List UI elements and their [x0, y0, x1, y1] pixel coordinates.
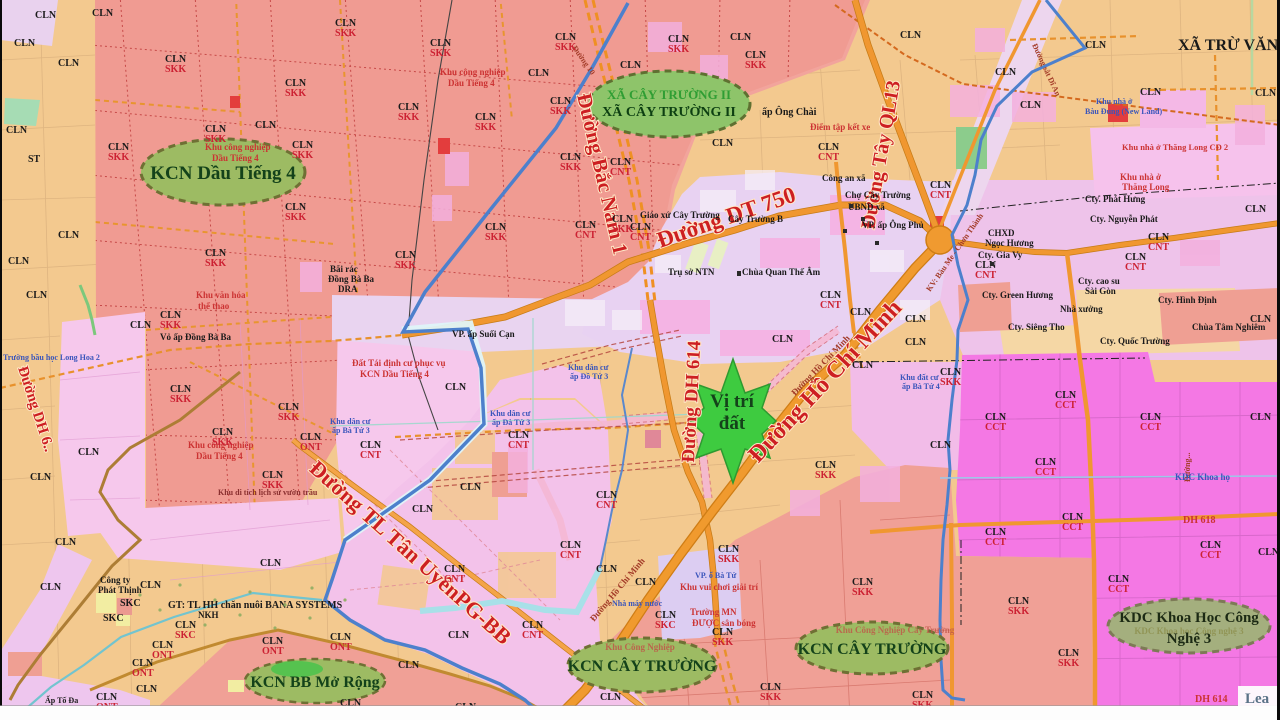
svg-text:Khu Công Nghiệp: Khu Công Nghiệp: [605, 642, 675, 652]
svg-text:KCN CÂY TRƯỜNG: KCN CÂY TRƯỜNG: [798, 639, 947, 658]
svg-text:CLN: CLN: [8, 256, 30, 267]
svg-text:CNT: CNT: [610, 167, 631, 178]
svg-text:CLN: CLN: [600, 692, 622, 703]
svg-text:Cty. Quốc Trường: Cty. Quốc Trường: [1100, 336, 1170, 346]
svg-text:XÃ CÂY TRƯỜNG II: XÃ CÂY TRƯỜNG II: [607, 87, 731, 102]
svg-text:CLN: CLN: [1140, 87, 1162, 98]
svg-text:Khu nhà ở Thăng Long CĐ 2: Khu nhà ở Thăng Long CĐ 2: [1122, 142, 1228, 152]
svg-text:CLN: CLN: [460, 482, 482, 493]
svg-text:Khu công nghiệp: Khu công nghiệp: [440, 67, 506, 77]
svg-text:ONT: ONT: [132, 668, 154, 679]
svg-text:CNT: CNT: [522, 630, 543, 641]
svg-text:CLN: CLN: [40, 582, 62, 593]
svg-text:SKK: SKK: [940, 377, 961, 388]
svg-text:CLN: CLN: [596, 564, 618, 575]
svg-text:Khu nhà ở: Khu nhà ở: [1120, 172, 1161, 182]
svg-text:SKK: SKK: [395, 260, 416, 271]
svg-text:SKK: SKK: [745, 60, 766, 71]
svg-text:Lea: Lea: [1245, 691, 1270, 707]
svg-text:CLN: CLN: [528, 68, 550, 79]
svg-text:SKK: SKK: [485, 232, 506, 243]
svg-text:CLN: CLN: [260, 558, 282, 569]
svg-text:SKC: SKC: [120, 598, 141, 609]
svg-text:Dầu Tiếng 4: Dầu Tiếng 4: [448, 78, 495, 88]
svg-text:CLN: CLN: [92, 8, 114, 19]
svg-text:Thăng Long: Thăng Long: [1122, 182, 1170, 192]
svg-text:CNT: CNT: [630, 232, 651, 243]
svg-text:DH 618: DH 618: [1183, 515, 1216, 526]
svg-text:CCT: CCT: [1140, 422, 1161, 433]
svg-text:Khu đất cư: Khu đất cư: [900, 373, 939, 382]
svg-text:Bàu Đung (New Land): Bàu Đung (New Land): [1085, 107, 1162, 116]
svg-text:DRA: DRA: [338, 284, 358, 294]
svg-text:XÃ TRỪ VĂN T: XÃ TRỪ VĂN T: [1178, 35, 1280, 54]
svg-text:CLN: CLN: [852, 360, 874, 371]
svg-text:SKK: SKK: [278, 412, 299, 423]
svg-text:CLN: CLN: [905, 337, 927, 348]
svg-text:Khu dân cư: Khu dân cư: [330, 417, 371, 426]
svg-text:Điểm tập kết xe: Điểm tập kết xe: [810, 122, 870, 132]
svg-text:ONT: ONT: [262, 646, 284, 657]
svg-text:CLN: CLN: [58, 230, 80, 241]
svg-text:Khu vui chơi giải trí: Khu vui chơi giải trí: [680, 582, 758, 592]
svg-text:CLN: CLN: [6, 125, 28, 136]
svg-text:ấp Đồ Tứ 3: ấp Đồ Tứ 3: [570, 372, 608, 381]
svg-text:KCN CÂY TRƯỜNG: KCN CÂY TRƯỜNG: [568, 656, 717, 675]
svg-text:KCN BB Mở Rộng: KCN BB Mở Rộng: [250, 674, 379, 691]
svg-text:CLN: CLN: [55, 537, 77, 548]
svg-text:Công ty: Công ty: [100, 575, 131, 585]
svg-text:Cty. cao su: Cty. cao su: [1078, 276, 1120, 286]
svg-text:CNT: CNT: [596, 500, 617, 511]
svg-text:ấp Đà Tứ 3: ấp Đà Tứ 3: [492, 418, 530, 427]
svg-text:CLN: CLN: [905, 314, 927, 325]
svg-text:SKK: SKK: [212, 437, 233, 448]
svg-text:Nhà máy nước: Nhà máy nước: [612, 599, 663, 608]
svg-text:Công an xã: Công an xã: [822, 173, 866, 183]
svg-text:SKK: SKK: [205, 134, 226, 145]
svg-text:ONT: ONT: [152, 650, 174, 661]
svg-text:CLN: CLN: [136, 684, 158, 695]
svg-text:Trụ sở NTN: Trụ sở NTN: [668, 267, 715, 277]
svg-text:ST: ST: [28, 154, 41, 165]
svg-text:SKK: SKK: [712, 637, 733, 648]
svg-text:Ấp Tố Đa: Ấp Tố Đa: [45, 695, 78, 705]
svg-text:KDC Khoa họ: KDC Khoa họ: [1175, 472, 1231, 482]
svg-text:VP. ấp Suối Cạn: VP. ấp Suối Cạn: [452, 329, 515, 339]
svg-text:CLN: CLN: [1020, 100, 1042, 111]
svg-text:XÃ CÂY TRƯỜNG II: XÃ CÂY TRƯỜNG II: [602, 102, 736, 120]
svg-text:SKK: SKK: [815, 470, 836, 481]
svg-text:Khu dân cư: Khu dân cư: [490, 409, 531, 418]
svg-text:Cty. Phát Hưng: Cty. Phát Hưng: [1085, 194, 1146, 204]
svg-text:CLN: CLN: [255, 120, 277, 131]
svg-text:CNT: CNT: [818, 152, 839, 163]
svg-text:SKC: SKC: [655, 620, 676, 631]
svg-text:SKK: SKK: [335, 28, 356, 39]
svg-text:SKK: SKK: [262, 480, 283, 491]
svg-text:SKK: SKK: [668, 44, 689, 55]
svg-text:UBND xã: UBND xã: [848, 202, 885, 212]
svg-text:SKK: SKK: [165, 64, 186, 75]
svg-text:Cty. Nguyễn Phát: Cty. Nguyễn Phát: [1090, 214, 1158, 224]
svg-text:SKC: SKC: [103, 613, 124, 624]
svg-text:CLN: CLN: [635, 577, 657, 588]
svg-text:Cây Trường B: Cây Trường B: [728, 214, 783, 224]
svg-text:SKK: SKK: [718, 554, 739, 565]
svg-text:Cty. Hình Định: Cty. Hình Định: [1158, 295, 1217, 305]
svg-text:Khu nhà ở: Khu nhà ở: [1096, 97, 1133, 106]
svg-text:CNT: CNT: [444, 574, 465, 585]
svg-text:CNT: CNT: [930, 190, 951, 201]
svg-text:CLN: CLN: [1258, 547, 1280, 558]
svg-text:Dầu Tiếng 4: Dầu Tiếng 4: [196, 451, 243, 461]
svg-text:SKK: SKK: [550, 106, 571, 117]
svg-text:CLN: CLN: [78, 447, 100, 458]
svg-text:CCT: CCT: [1062, 522, 1083, 533]
svg-text:CLN: CLN: [730, 32, 752, 43]
svg-text:Trường bầu học Long Hoa 2: Trường bầu học Long Hoa 2: [3, 353, 100, 362]
svg-text:CHXD: CHXD: [988, 228, 1015, 238]
svg-text:CLN: CLN: [35, 10, 57, 21]
svg-text:CCT: CCT: [1108, 584, 1129, 595]
svg-text:ấp Bà Tứ 3: ấp Bà Tứ 3: [332, 426, 370, 435]
svg-text:CNT: CNT: [360, 450, 381, 461]
svg-text:ONT: ONT: [300, 442, 322, 453]
svg-text:CLN: CLN: [995, 67, 1017, 78]
svg-text:Bãi rác: Bãi rác: [330, 264, 358, 274]
svg-text:Đồng Bà Ba: Đồng Bà Ba: [328, 274, 375, 284]
svg-text:CLN: CLN: [140, 580, 162, 591]
svg-text:Vỏ ấp Đồng Bà Ba: Vỏ ấp Đồng Bà Ba: [160, 332, 232, 342]
svg-text:Giáo xứ Cây Trường: Giáo xứ Cây Trường: [640, 210, 720, 220]
svg-text:CLN: CLN: [1250, 412, 1272, 423]
svg-text:CCT: CCT: [1055, 400, 1076, 411]
svg-text:Cty. Green Hương: Cty. Green Hương: [982, 290, 1053, 300]
svg-text:CCT: CCT: [985, 422, 1006, 433]
svg-text:CLN: CLN: [58, 58, 80, 69]
svg-text:Ngọc Hương: Ngọc Hương: [985, 238, 1034, 248]
svg-text:CLN: CLN: [850, 307, 872, 318]
svg-text:CLN: CLN: [712, 138, 734, 149]
svg-text:ấp Ông Chài: ấp Ông Chài: [762, 105, 817, 118]
svg-text:CLN: CLN: [130, 320, 152, 331]
svg-text:CCT: CCT: [985, 537, 1006, 548]
svg-text:Khu văn hóa: Khu văn hóa: [196, 290, 246, 300]
svg-text:CLN: CLN: [398, 660, 420, 671]
svg-text:CLN: CLN: [1255, 88, 1277, 99]
svg-text:Chùa Quan Thế Âm: Chùa Quan Thế Âm: [742, 267, 821, 277]
svg-text:NKH: NKH: [198, 610, 219, 620]
svg-text:SKK: SKK: [1058, 658, 1079, 669]
svg-text:SKK: SKK: [555, 42, 576, 53]
svg-text:Khu Công Nghiệp Cây Trường: Khu Công Nghiệp Cây Trường: [836, 625, 955, 635]
svg-text:CLN: CLN: [445, 382, 467, 393]
svg-text:Dầu Tiếng 4: Dầu Tiếng 4: [212, 153, 259, 163]
svg-text:SKK: SKK: [475, 122, 496, 133]
svg-text:SKK: SKK: [398, 112, 419, 123]
svg-text:CLN: CLN: [930, 440, 952, 451]
svg-text:Trường MN: Trường MN: [690, 607, 737, 617]
svg-text:SKC: SKC: [175, 630, 196, 641]
svg-text:Nghệ 3: Nghệ 3: [1167, 631, 1212, 647]
svg-text:CLN: CLN: [1250, 314, 1272, 325]
svg-text:DH 614: DH 614: [1195, 694, 1228, 705]
svg-text:SKK: SKK: [852, 587, 873, 598]
svg-text:SKK: SKK: [1008, 606, 1029, 617]
svg-text:CNT: CNT: [1148, 242, 1169, 253]
svg-text:CLN: CLN: [1245, 204, 1267, 215]
svg-text:KCN Dầu Tiếng 4: KCN Dầu Tiếng 4: [360, 369, 429, 379]
svg-text:CLN: CLN: [900, 30, 922, 41]
svg-text:ấp Bà Tứ 4: ấp Bà Tứ 4: [902, 382, 940, 391]
svg-text:CLN: CLN: [1085, 40, 1107, 51]
svg-text:Phát Thịnh: Phát Thịnh: [98, 585, 142, 595]
svg-text:SKK: SKK: [205, 258, 226, 269]
svg-text:CNT: CNT: [575, 230, 596, 241]
svg-text:GT: TL HH chăn nuôi BANA SYSTE: GT: TL HH chăn nuôi BANA SYSTEMS: [168, 600, 343, 611]
svg-text:SKK: SKK: [170, 394, 191, 405]
svg-text:CNT: CNT: [508, 440, 529, 451]
svg-text:ONT: ONT: [330, 642, 352, 653]
svg-text:SKK: SKK: [292, 150, 313, 161]
svg-text:CLN: CLN: [448, 630, 470, 641]
svg-text:Chợ Cây Trường: Chợ Cây Trường: [845, 190, 911, 200]
svg-text:VP. ổ Bà Tứ: VP. ổ Bà Tứ: [695, 571, 736, 580]
svg-text:SKK: SKK: [760, 692, 781, 703]
svg-text:Đất Tái định cư phục vụ: Đất Tái định cư phục vụ: [352, 358, 446, 368]
svg-text:CCT: CCT: [1200, 550, 1221, 561]
svg-text:thể thao: thể thao: [198, 301, 230, 311]
svg-text:CNT: CNT: [1125, 262, 1146, 273]
svg-text:VP. ấp Ông Phủ: VP. ấp Ông Phủ: [862, 220, 924, 230]
svg-text:CNT: CNT: [975, 270, 996, 281]
svg-text:Cty. Gia Vy: Cty. Gia Vy: [978, 250, 1023, 260]
svg-text:CLN: CLN: [26, 290, 48, 301]
svg-text:Khu dân cư: Khu dân cư: [568, 363, 609, 372]
svg-text:Cty. Siêng Tho: Cty. Siêng Tho: [1008, 322, 1065, 332]
svg-text:Nhà xưởng: Nhà xưởng: [1060, 304, 1103, 314]
svg-text:SKK: SKK: [108, 152, 129, 163]
svg-text:CLN: CLN: [412, 504, 434, 515]
svg-text:CNT: CNT: [560, 550, 581, 561]
svg-text:CLN: CLN: [772, 334, 794, 345]
svg-text:SKK: SKK: [285, 212, 306, 223]
svg-text:KCN Dầu Tiếng 4: KCN Dầu Tiếng 4: [150, 163, 296, 184]
svg-text:CLN: CLN: [30, 472, 52, 483]
svg-text:SKK: SKK: [160, 320, 181, 331]
svg-text:CLN: CLN: [620, 60, 642, 71]
svg-text:CNT: CNT: [820, 300, 841, 311]
svg-text:KDC Khoa Học Công: KDC Khoa Học Công: [1119, 610, 1259, 626]
svg-text:CLN: CLN: [14, 38, 36, 49]
svg-text:SKK: SKK: [285, 88, 306, 99]
svg-text:SKK: SKK: [560, 162, 581, 173]
svg-text:CCT: CCT: [1035, 467, 1056, 478]
svg-text:đất: đất: [719, 413, 746, 434]
svg-text:Vị trí: Vị trí: [710, 391, 755, 412]
svg-text:SKK: SKK: [430, 48, 451, 59]
svg-text:Sài Gòn: Sài Gòn: [1085, 286, 1116, 296]
